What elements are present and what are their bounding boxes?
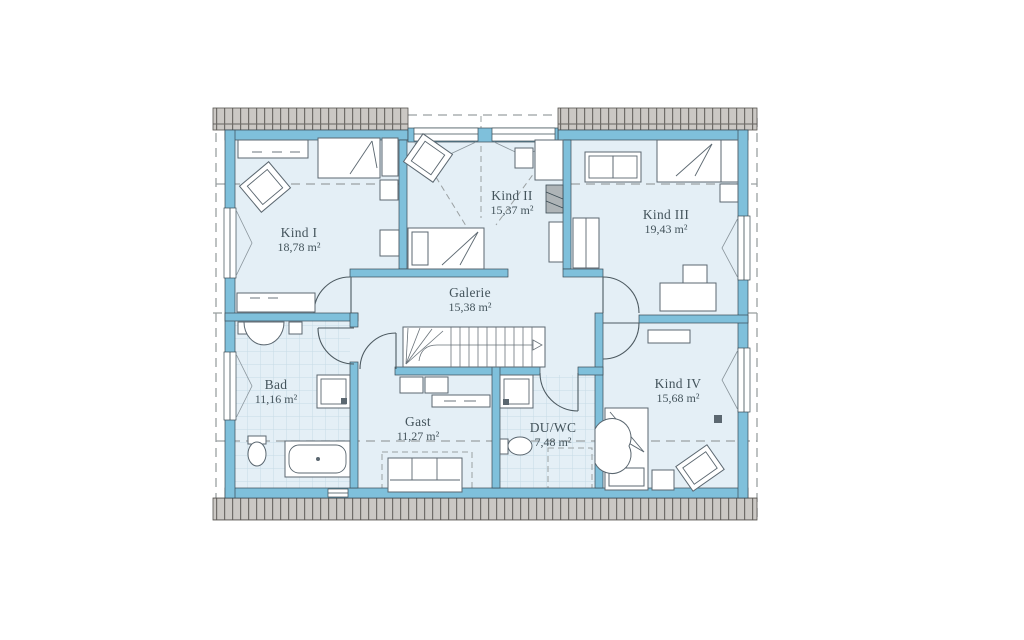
room-area-kind2: 15,37 m² xyxy=(491,203,534,217)
bed-icon xyxy=(657,140,738,182)
room-label-gast: Gast xyxy=(405,414,431,429)
floor-plan: Kind I 18,78 m² Kind II 15,37 m² Kind II… xyxy=(0,0,1024,640)
room-area-gast: 11,27 m² xyxy=(397,429,440,443)
chimney-icon xyxy=(546,185,563,213)
room-area-kind1: 18,78 m² xyxy=(278,240,321,254)
floor-plan-page: Kind I 18,78 m² Kind II 15,37 m² Kind II… xyxy=(0,0,1024,640)
sofa-icon xyxy=(388,458,462,492)
shower-icon xyxy=(500,375,533,408)
wall-fixture-icon xyxy=(714,415,722,423)
bed-icon xyxy=(408,228,484,269)
bed-icon xyxy=(318,138,398,178)
room-label-galerie: Galerie xyxy=(449,285,491,300)
shower-icon xyxy=(317,375,350,408)
nightstand-icon xyxy=(720,184,738,202)
shelf-icon xyxy=(549,222,563,262)
cabinet-icon xyxy=(400,377,423,393)
room-label-kind4: Kind IV xyxy=(655,376,702,391)
sink-icon xyxy=(595,419,631,474)
room-label-kind2: Kind II xyxy=(491,188,533,203)
dresser-icon xyxy=(648,330,690,343)
toilet-icon xyxy=(248,436,266,466)
room-area-kind3: 19,43 m² xyxy=(645,222,688,236)
desk-icon xyxy=(535,140,563,180)
sideboard-icon xyxy=(432,395,490,407)
dresser-icon xyxy=(237,293,315,312)
toilet-icon xyxy=(500,437,532,455)
stairs xyxy=(403,327,545,367)
cabinet-icon xyxy=(425,377,448,393)
room-label-duwc: DU/WC xyxy=(530,420,577,435)
chair-icon xyxy=(683,265,707,283)
side-table-icon xyxy=(652,470,674,490)
sofa-icon xyxy=(585,152,641,182)
room-area-galerie: 15,38 m² xyxy=(449,300,492,314)
room-area-bad: 11,16 m² xyxy=(255,392,298,406)
room-label-bad: Bad xyxy=(265,377,288,392)
room-area-duwc: 7,48 m² xyxy=(535,435,572,449)
chair-icon xyxy=(515,148,533,168)
desk-icon xyxy=(660,283,716,311)
shelf-icon xyxy=(380,230,399,256)
nightstand-icon xyxy=(380,180,398,200)
room-label-kind3: Kind III xyxy=(643,207,689,222)
wardrobe-icon xyxy=(238,140,308,158)
window-bottom-bad xyxy=(328,489,348,497)
room-label-kind1: Kind I xyxy=(281,225,318,240)
room-area-kind4: 15,68 m² xyxy=(657,391,700,405)
bathtub-icon xyxy=(285,441,350,477)
